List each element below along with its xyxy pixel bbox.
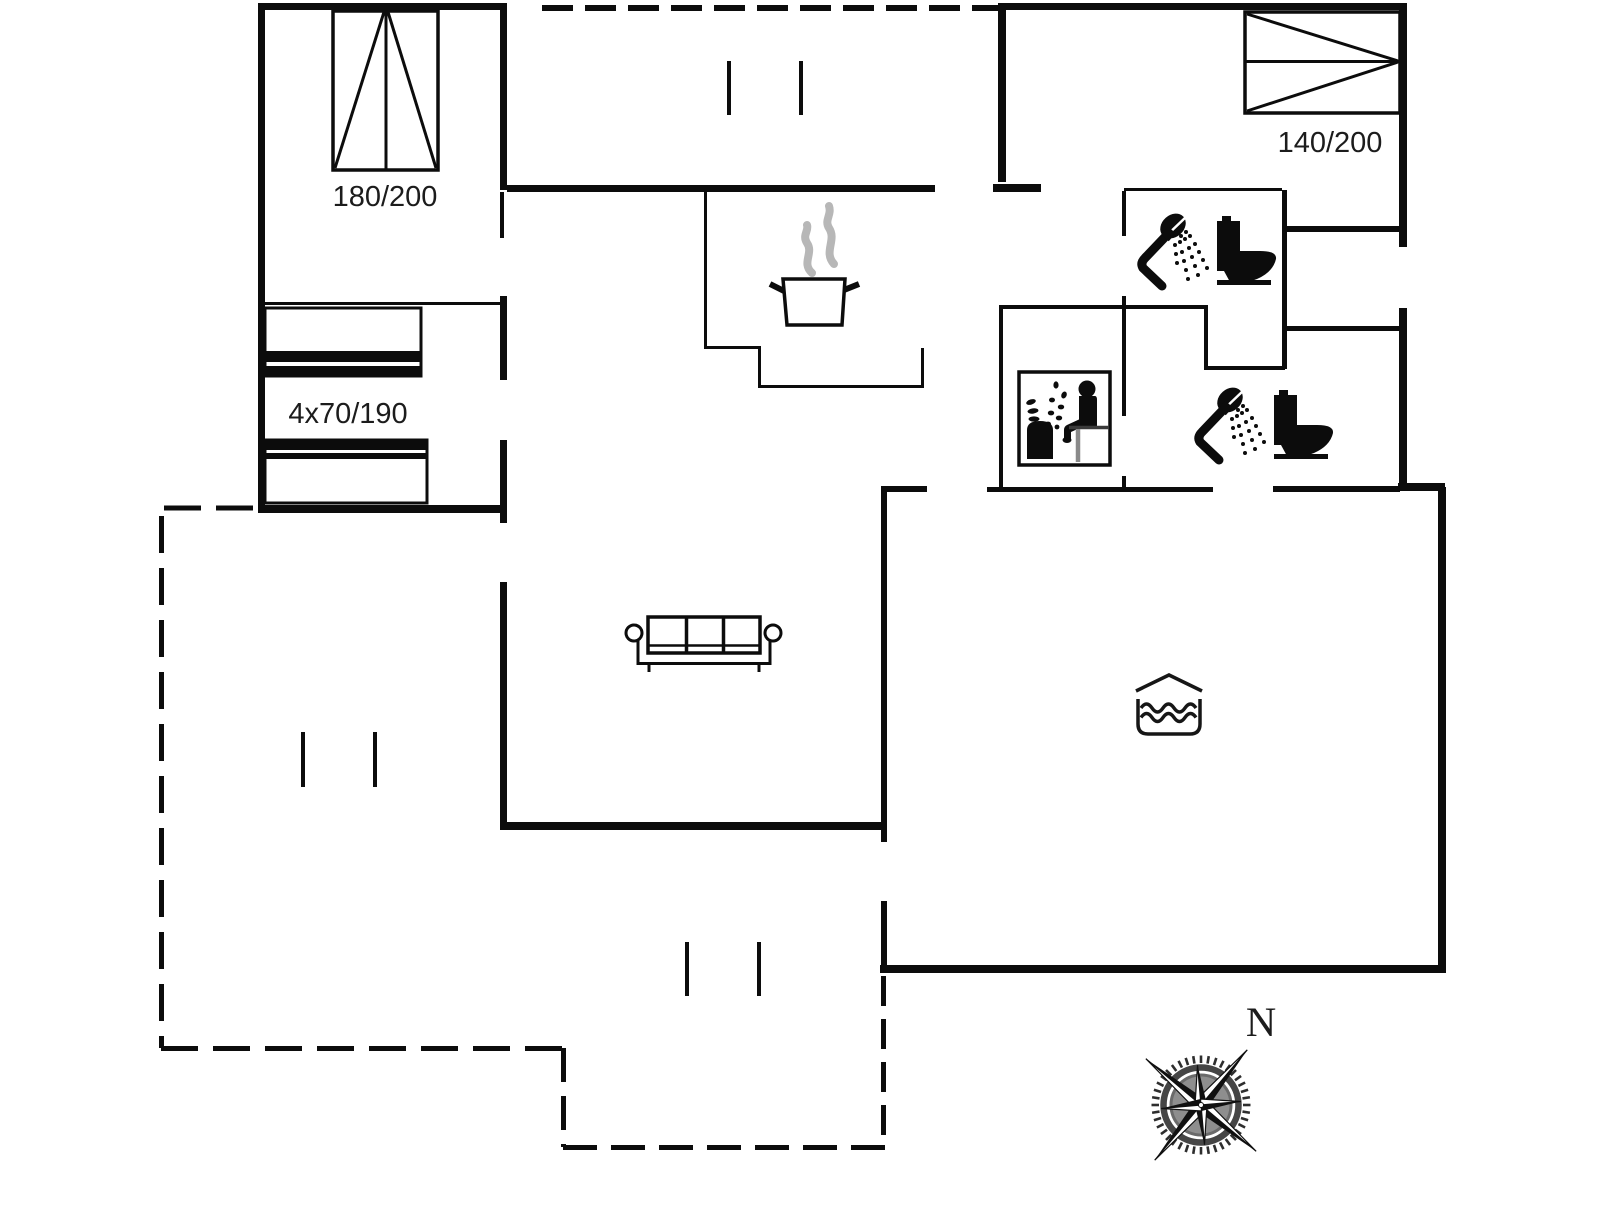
svg-text:N: N	[1246, 1000, 1276, 1046]
svg-text:180/200: 180/200	[333, 181, 438, 213]
svg-text:4x70/190: 4x70/190	[288, 398, 407, 430]
svg-text:140/200: 140/200	[1278, 127, 1383, 159]
